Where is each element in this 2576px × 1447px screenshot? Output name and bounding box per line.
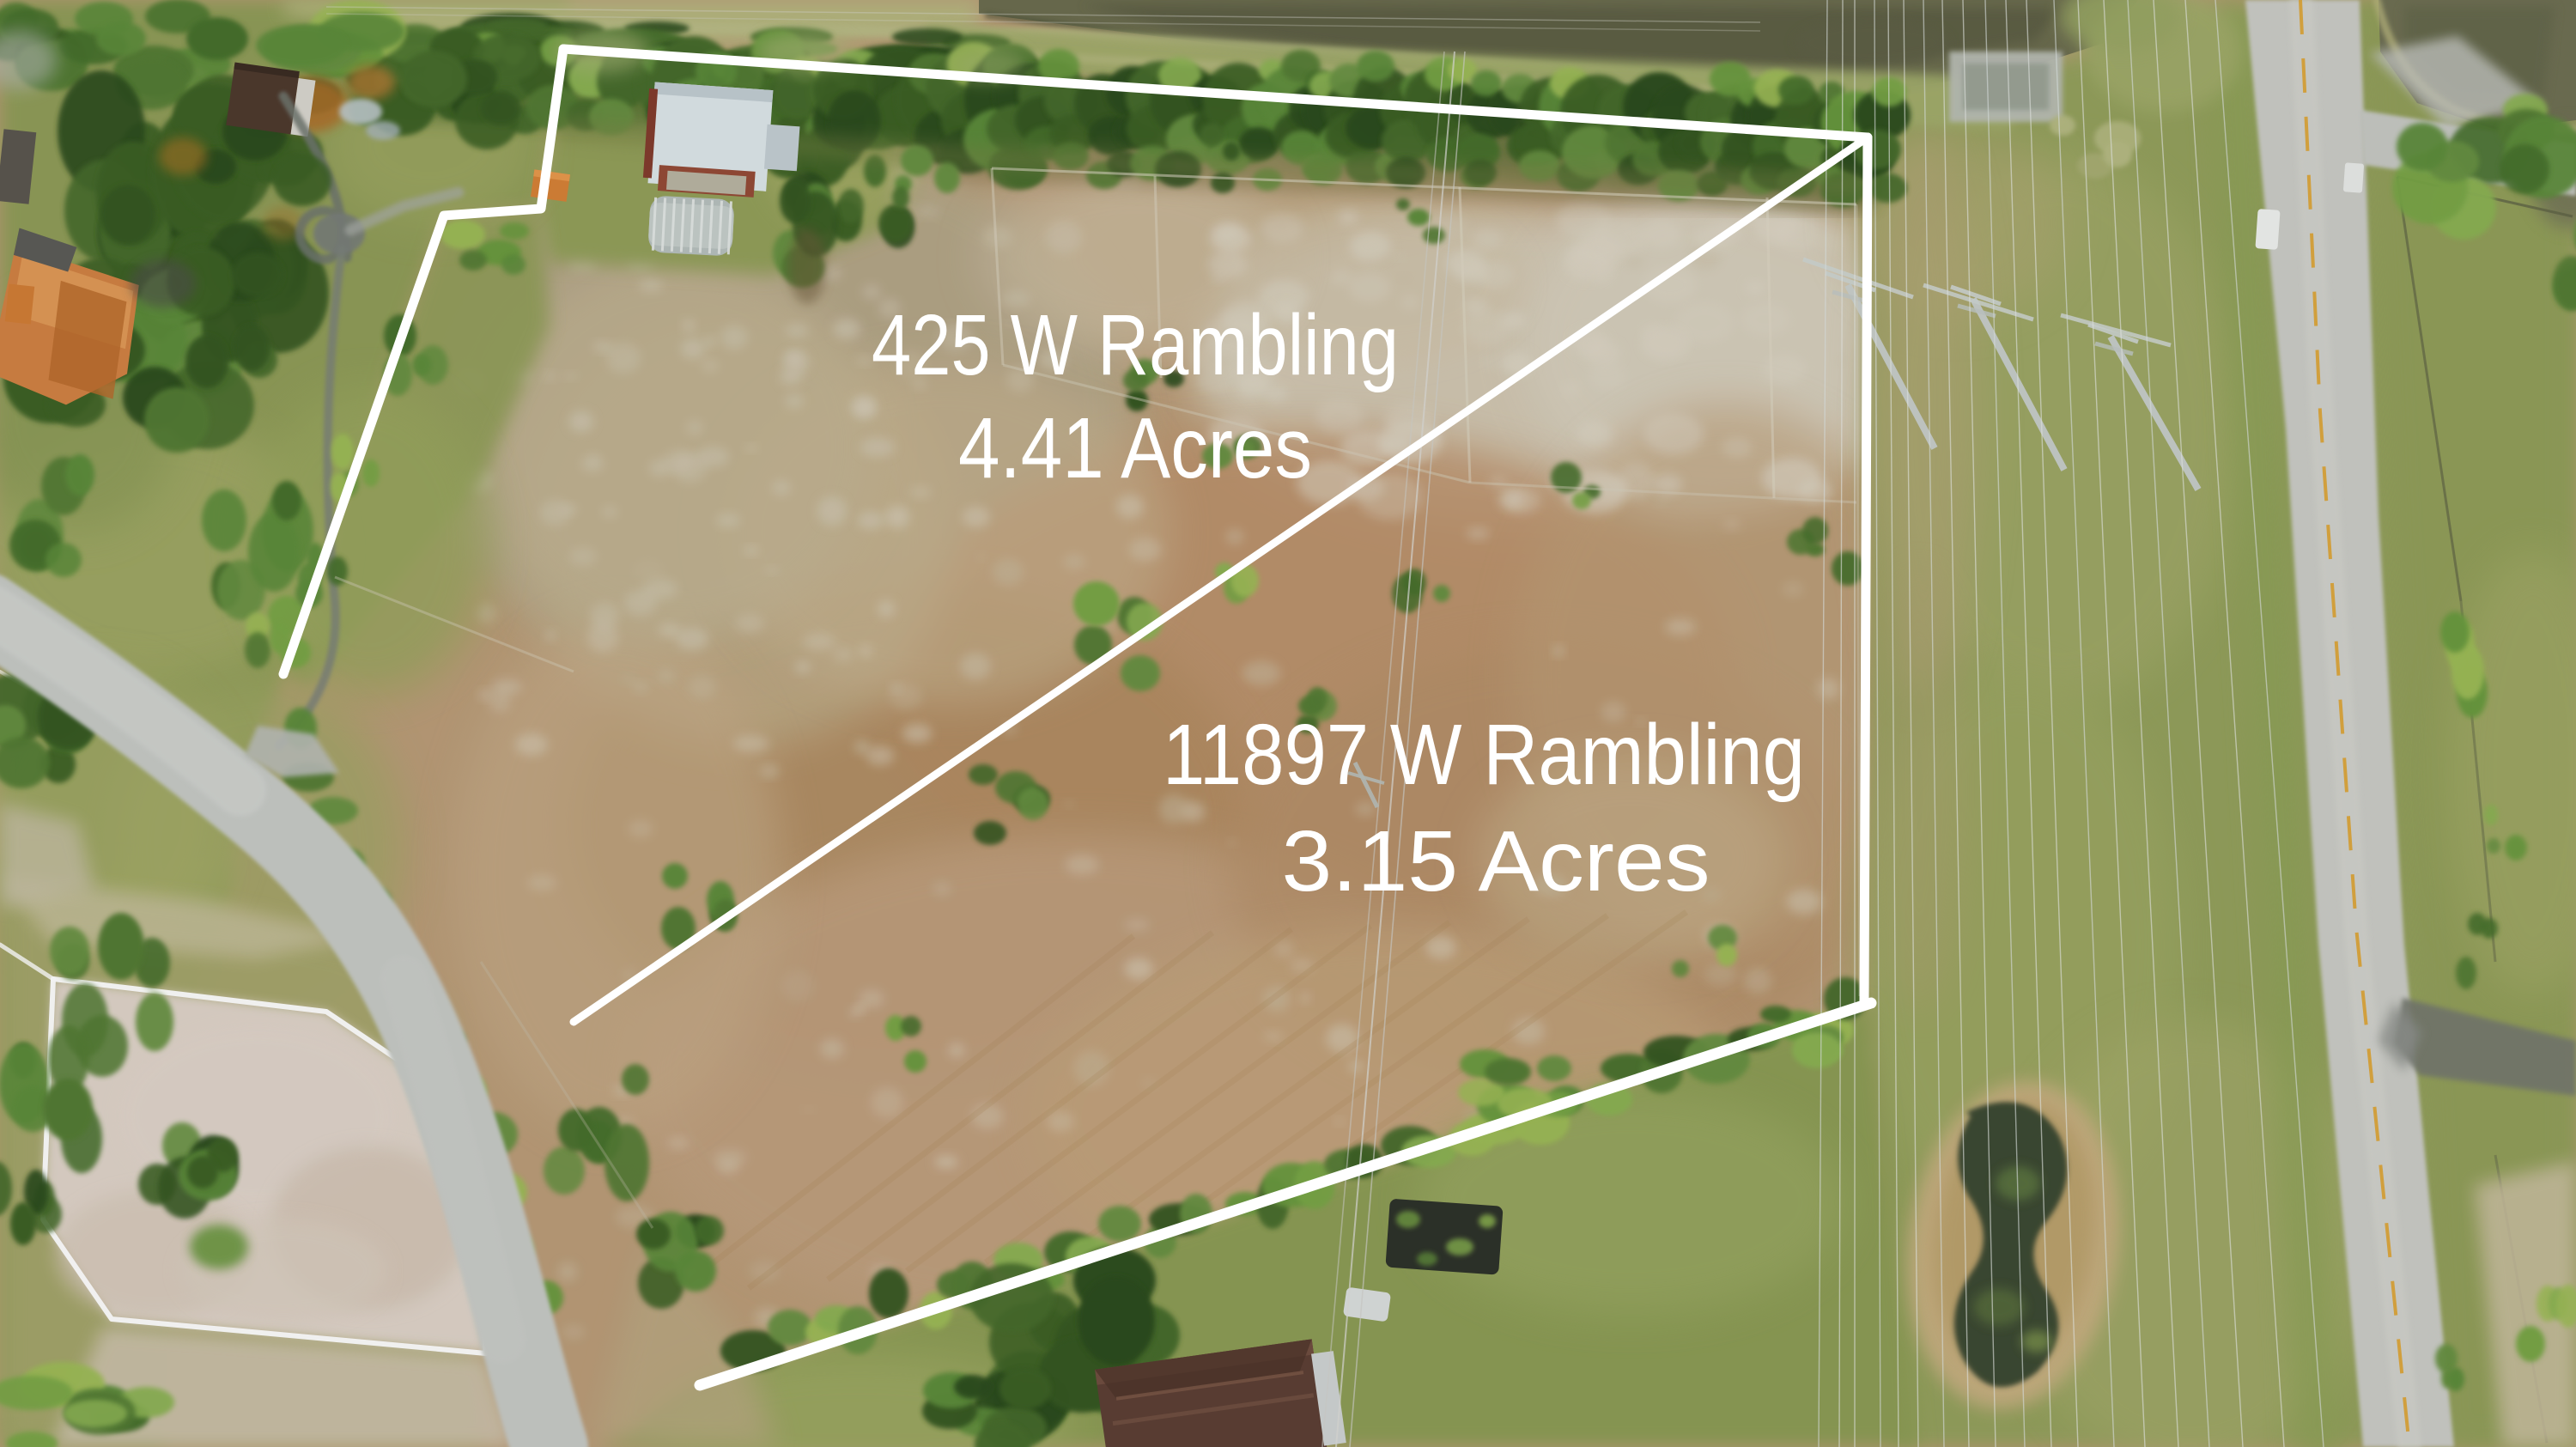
svg-text:3.15 Acres: 3.15 Acres: [1282, 813, 1710, 909]
svg-text:11897 W Rambling: 11897 W Rambling: [1163, 707, 1805, 803]
svg-text:425 W Rambling: 425 W Rambling: [872, 297, 1399, 393]
svg-text:4.41 Acres: 4.41 Acres: [958, 400, 1312, 496]
